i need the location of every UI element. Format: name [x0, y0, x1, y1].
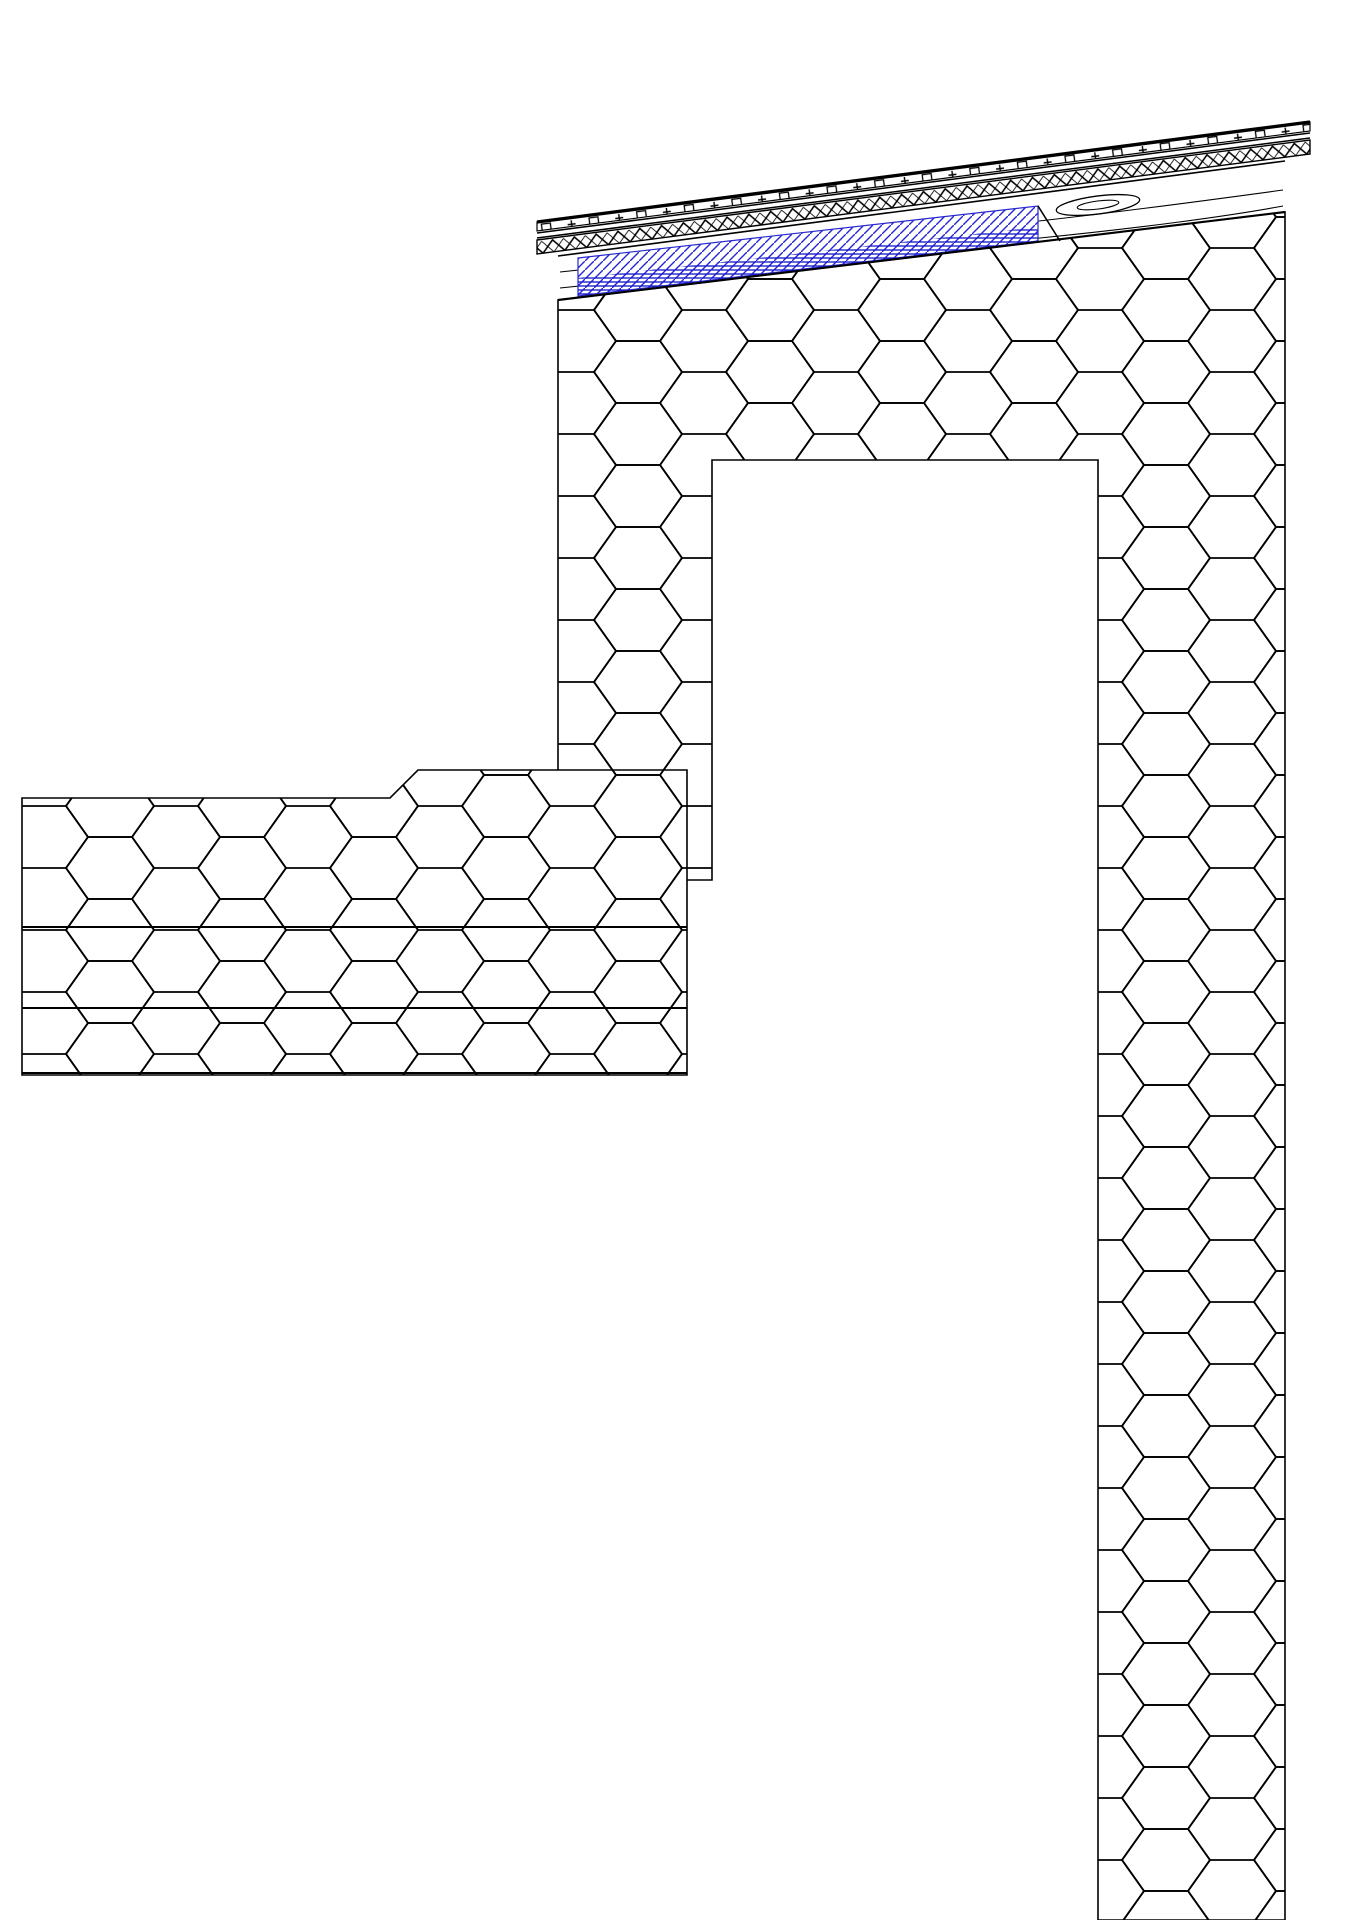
insulation-hexagon-fields	[22, 212, 1285, 1920]
flat-roof-insulation	[22, 770, 687, 1075]
detail-drawing-svg	[0, 0, 1357, 1920]
construction-detail-drawing	[0, 0, 1357, 1920]
